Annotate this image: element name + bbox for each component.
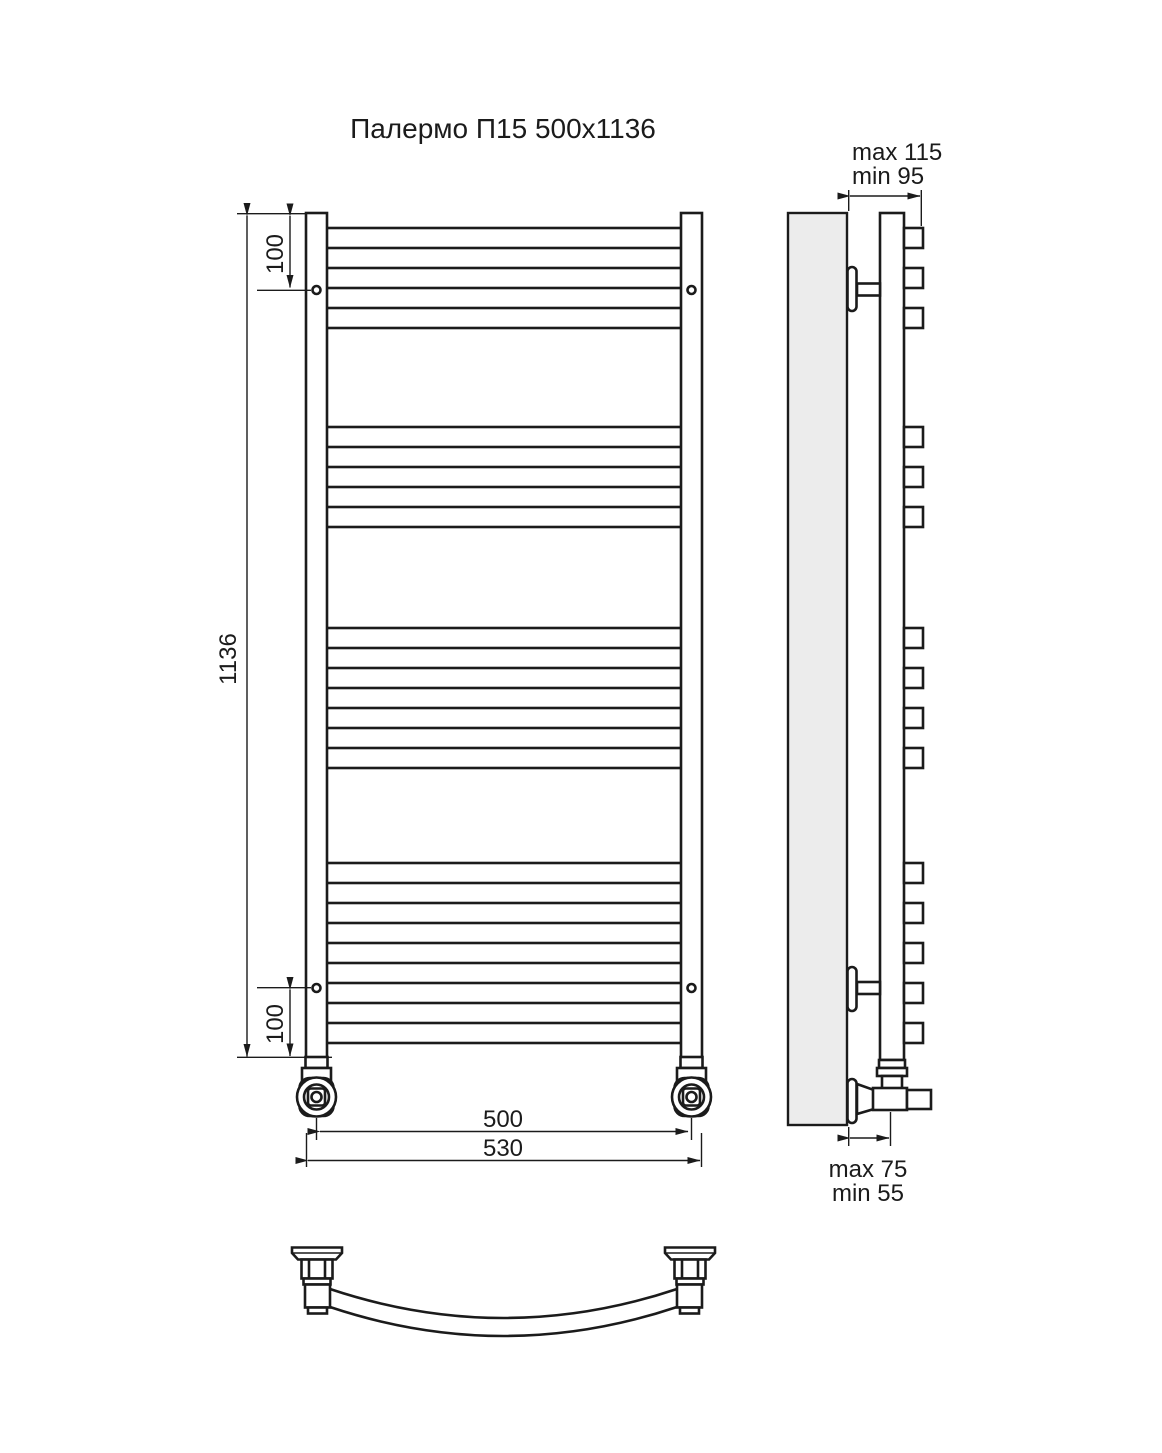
rung [327,983,682,1003]
curved-rung-outer [330,1289,677,1318]
top-view-bracket-right [665,1248,715,1314]
rung [327,708,682,728]
rung-end [904,507,923,527]
rung-end [904,903,923,923]
dim-bottom-offset: 100 [257,988,311,1056]
rung [327,863,682,883]
rung [327,427,682,447]
rung-end [904,1023,923,1043]
rung [327,943,682,963]
dim-top-offset-label: 100 [262,234,289,274]
rung-end [904,268,923,288]
rung [327,268,682,288]
wall [788,213,847,1125]
drawing-title: Палермо П15 500х1136 [350,113,656,144]
rung [327,228,682,248]
dim-clearance-top-max: max 115 [852,139,942,166]
mounting-hole [688,984,696,992]
rung-end [904,668,923,688]
front-view: 1136 100 100 500 530 [215,213,711,1167]
rung-end [904,943,923,963]
rung-end [904,708,923,728]
right-rail [681,213,702,1058]
bottom-bracket [848,967,881,1011]
dim-clearance-bottom-min: min 55 [832,1180,904,1207]
top-bracket [848,267,881,311]
rung [327,507,682,527]
left-valve [297,1057,336,1117]
rung-end [904,308,923,328]
rung [327,668,682,688]
rung-end [904,467,923,487]
rung-end [904,863,923,883]
mounting-hole [313,984,321,992]
side-view: max 115 min 95 max 75 min 55 [788,139,942,1207]
right-valve [672,1057,711,1117]
left-rail [306,213,327,1058]
dim-top-offset: 100 [257,216,311,290]
rung-end [904,427,923,447]
dim-clearance-top-min: min 95 [852,163,924,190]
rung [327,748,682,768]
mounting-hole [313,286,321,294]
drawing-page: Палермо П15 500х1136 [0,0,1162,1453]
rung-end [904,983,923,1003]
top-view [292,1248,715,1337]
curved-rung-inner [330,1307,677,1336]
dim-clearance-bottom: max 75 min 55 [829,1112,908,1207]
rung [327,903,682,923]
rung [327,1023,682,1043]
dim-bottom-offset-label: 100 [262,1004,289,1044]
rung [327,628,682,648]
dim-clearance-bottom-max: max 75 [829,1156,908,1183]
mounting-hole [688,286,696,294]
technical-drawing: Палермо П15 500х1136 [0,0,1162,1453]
dim-overall-width-label: 530 [483,1135,523,1162]
rung [327,308,682,328]
side-rail [880,213,904,1060]
dim-connection-width-label: 500 [483,1106,523,1133]
rung-end [904,748,923,768]
rung-end [904,628,923,648]
rung-end [904,228,923,248]
side-valve [848,1060,932,1123]
rung [327,467,682,487]
dim-overall-width: 530 [307,1133,702,1167]
front-rungs [327,228,682,1043]
side-rungs [904,228,923,1043]
top-view-bracket-left [292,1248,342,1314]
dim-height-label: 1136 [215,633,242,685]
